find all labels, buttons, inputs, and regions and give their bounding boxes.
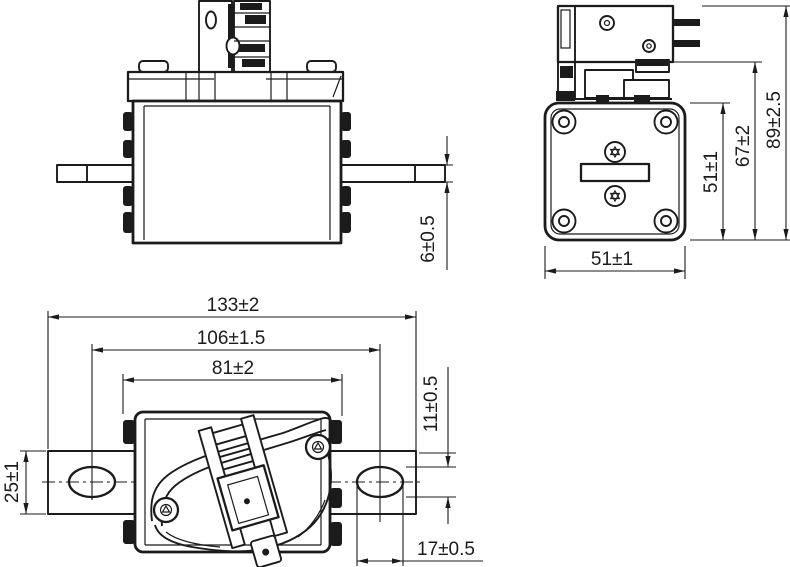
fuse-dimension-drawing: 133±2 106±1.5 81±2 25±1 17±0.5 11±0.5 6±…: [0, 0, 790, 567]
front-view: [57, 1, 445, 243]
corner-screw: [553, 111, 576, 134]
top-view: [42, 412, 424, 567]
front-blade-left: [57, 165, 133, 182]
dim-label-overall-height: 89±2.5: [764, 91, 785, 149]
switch-terminal-pin: [673, 19, 700, 26]
dim-label-blade-width: 25±1: [2, 461, 23, 503]
body-screw: [154, 498, 178, 522]
corner-screw: [553, 210, 576, 233]
dim-label-overall-length: 133±2: [207, 295, 260, 316]
dim-label-side-width: 51±1: [591, 249, 633, 270]
side-microswitch: [558, 6, 700, 62]
corner-screw: [655, 210, 678, 233]
front-blade-right: [341, 165, 445, 182]
center-slot: [581, 164, 649, 181]
dim-label-slot-width: 11±0.5: [421, 376, 442, 433]
side-mount-bracket: [556, 60, 672, 103]
front-body: [133, 101, 341, 243]
dim-label-bracket-height: 67±2: [733, 125, 754, 167]
dim-label-blade-thickness: 6±0.5: [418, 215, 439, 262]
center-torx-screw: [605, 186, 625, 206]
corner-screw: [655, 111, 678, 134]
body-screw: [306, 435, 330, 459]
side-body-face: [545, 103, 685, 240]
dim-label-side-height: 51±1: [701, 151, 722, 193]
dim-label-slot-length: 17±0.5: [417, 539, 475, 560]
switch-terminal-pin: [673, 40, 700, 47]
side-view: [545, 6, 700, 240]
dim-label-body-length: 81±2: [212, 358, 254, 379]
technical-drawing-page: 133±2 106±1.5 81±2 25±1 17±0.5 11±0.5 6±…: [0, 0, 790, 567]
center-torx-screw: [605, 142, 625, 162]
dim-label-hole-spacing: 106±1.5: [197, 328, 266, 349]
